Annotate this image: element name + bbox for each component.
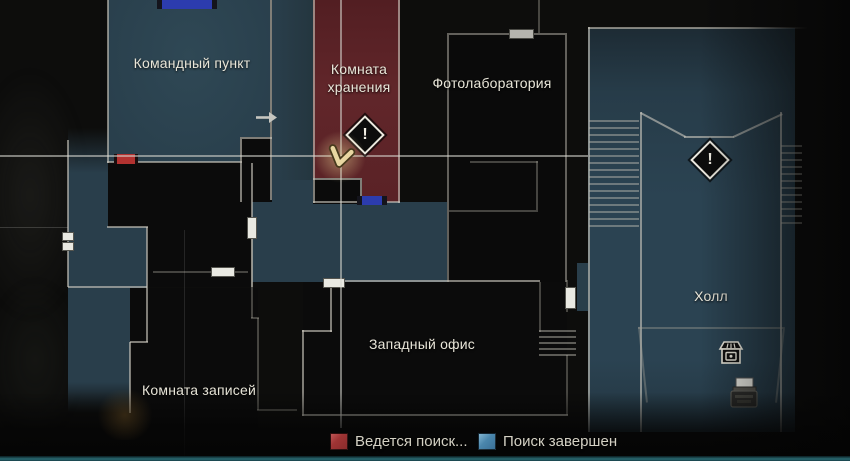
room-label-photo-lab: Фотолаборатория bbox=[432, 75, 551, 91]
stairs-hall-right bbox=[781, 145, 802, 228]
wall bbox=[398, 0, 400, 203]
door-marker-gray bbox=[509, 29, 534, 39]
save-point-typewriter-icon bbox=[729, 377, 759, 409]
wall bbox=[566, 355, 568, 415]
room-label-hall: Холл bbox=[694, 288, 728, 304]
wall bbox=[470, 161, 538, 163]
room-label-records: Комната записей bbox=[142, 382, 256, 398]
bottom-edge-strip bbox=[0, 456, 850, 461]
room-label-command-post: Командный пункт bbox=[134, 55, 251, 71]
door-marker-blue bbox=[157, 0, 217, 9]
objective-glyph: ! bbox=[698, 148, 722, 172]
wall-notch-black bbox=[240, 137, 272, 202]
wall bbox=[129, 342, 131, 413]
legend-blue-square-icon bbox=[478, 433, 496, 450]
door-marker-white bbox=[247, 217, 257, 239]
wall bbox=[302, 414, 568, 416]
door-marker-white bbox=[62, 232, 74, 241]
wall bbox=[107, 0, 109, 163]
wall bbox=[146, 227, 148, 287]
door-marker-white bbox=[565, 287, 576, 309]
map-screen[interactable]: ! ! Командный пункт Комната хранения Фот… bbox=[0, 0, 850, 461]
door-marker-white bbox=[62, 242, 74, 251]
map-cursor-horizontal-line bbox=[0, 155, 588, 157]
room-label-storage: Комната хранения bbox=[317, 60, 401, 96]
legend-red-square-icon bbox=[330, 433, 348, 450]
wall-notch-bottom bbox=[684, 136, 734, 138]
corridor-left-widen bbox=[108, 227, 147, 287]
door-marker-white bbox=[323, 278, 345, 288]
legend-item-in-progress: Ведется поиск... bbox=[330, 433, 468, 450]
wall bbox=[270, 0, 272, 200]
corridor-left-lower bbox=[68, 342, 130, 413]
desk-outline-top bbox=[638, 327, 783, 329]
wall bbox=[130, 341, 148, 343]
corridor-mid-lower bbox=[252, 202, 447, 282]
room-label-west-office: Западный офис bbox=[369, 336, 475, 352]
door-marker-white bbox=[211, 267, 235, 277]
wall bbox=[302, 330, 332, 332]
wall bbox=[107, 226, 148, 228]
stair-landing bbox=[577, 263, 588, 311]
wall bbox=[538, 0, 540, 33]
wall bbox=[588, 27, 748, 29]
wall bbox=[640, 112, 642, 432]
room-photo-lab bbox=[447, 33, 567, 287]
wall bbox=[313, 0, 315, 203]
item-box-icon bbox=[717, 340, 745, 366]
wall bbox=[302, 330, 304, 416]
wall bbox=[67, 140, 69, 287]
stairs-hall-left bbox=[589, 120, 639, 228]
wall bbox=[332, 280, 540, 282]
room-hall bbox=[588, 28, 795, 432]
legend-label: Ведется поиск... bbox=[355, 433, 468, 450]
room-records bbox=[130, 288, 258, 430]
wall bbox=[257, 318, 259, 410]
legend-label: Поиск завершен bbox=[503, 433, 617, 450]
wall bbox=[748, 27, 808, 29]
wall bbox=[588, 27, 590, 432]
wall bbox=[449, 210, 538, 212]
wall bbox=[68, 286, 147, 288]
corridor-left-upper bbox=[68, 128, 108, 287]
wall bbox=[257, 409, 297, 411]
map-transition-arrow-icon bbox=[255, 110, 279, 125]
wall bbox=[251, 230, 253, 318]
grid-line bbox=[0, 227, 68, 228]
legend-item-complete: Поиск завершен bbox=[478, 433, 617, 450]
stairs-west-office bbox=[539, 330, 576, 357]
wall bbox=[536, 161, 538, 210]
wall bbox=[146, 287, 148, 342]
corridor-mid-upper bbox=[272, 0, 313, 202]
wall bbox=[539, 282, 541, 332]
door-marker-blue bbox=[357, 196, 387, 205]
